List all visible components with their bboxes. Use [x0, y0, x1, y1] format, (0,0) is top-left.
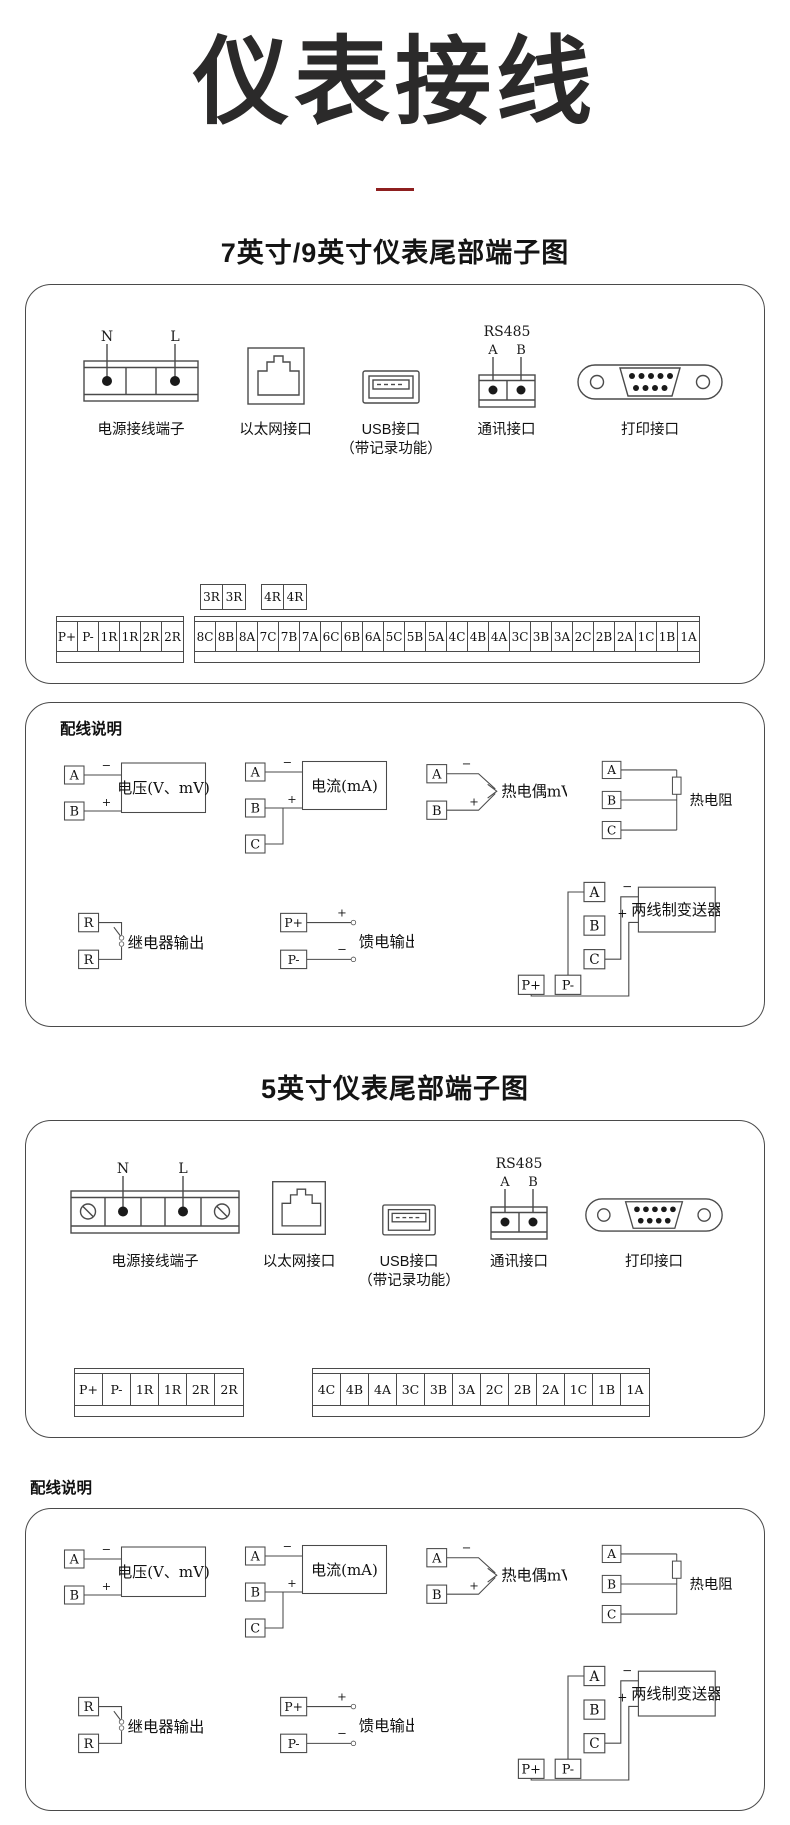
svg-text:A: A — [69, 769, 80, 784]
power-terminal-icon-wrap: N L — [67, 1153, 243, 1241]
svg-text:R: R — [84, 1700, 95, 1715]
relay-terminal-row: 3R3R 4R4R — [200, 584, 764, 610]
voltage-wiring-diagram: − + A B 电压(V、mV) — [60, 1541, 210, 1616]
svg-text:P-: P- — [288, 1737, 300, 1751]
svg-text:+: + — [617, 907, 627, 921]
terminal-cell: 1R — [131, 1374, 159, 1405]
svg-text:−: − — [102, 1543, 111, 1556]
ports-row: N L 电源接线端子 — [26, 1153, 764, 1291]
svg-text:L: L — [170, 329, 179, 345]
terminal-cell: P- — [78, 622, 99, 651]
terminal-cell: 1C — [636, 622, 657, 651]
svg-text:B: B — [70, 1589, 79, 1604]
thermocouple-wiring-diagram: − + A B 热电偶mV — [422, 757, 567, 833]
usb-icon — [360, 363, 422, 409]
svg-text:+: + — [469, 1579, 479, 1593]
svg-text:−: − — [462, 1541, 472, 1555]
svg-text:+: + — [337, 1689, 347, 1703]
svg-text:C: C — [589, 952, 599, 968]
db9-icon-wrap — [583, 1153, 725, 1241]
relay-output-wiring-diagram: R R 继电器输出 — [74, 904, 212, 981]
terminal-cell: P- — [103, 1374, 131, 1405]
power-port-label: 电源接线端子 — [112, 1253, 199, 1272]
svg-text:+: + — [102, 1580, 111, 1593]
svg-text:−: − — [337, 942, 347, 956]
left-terminal-strip: P+P-1R1R2R2R — [74, 1368, 244, 1417]
usb-port: USB接口 （带记录功能） — [354, 1153, 464, 1291]
page: 仪表接线 7英寸/9英寸仪表尾部端子图 N L 电源接线端子 — [0, 0, 790, 1811]
power-port-label: 电源接线端子 — [98, 421, 185, 440]
svg-text:C: C — [250, 1622, 260, 1637]
rs485-terminal-icon: RS485 A B — [481, 1155, 557, 1241]
wiring-heading: 配线说明 — [30, 1476, 790, 1498]
red-divider — [376, 188, 414, 191]
terminal-cell: 2R — [187, 1374, 215, 1405]
svg-text:A: A — [431, 1552, 442, 1567]
svg-text:热电偶mV: 热电偶mV — [501, 1567, 567, 1585]
terminal-cell: 1A — [621, 1374, 649, 1405]
wiring-diagrams: − + A B 电压(V、mV) − + A B C 电流(mA) — [60, 757, 738, 1008]
terminal-cell: 1B — [593, 1374, 621, 1405]
ethernet-icon-wrap — [268, 1153, 330, 1241]
terminal-cell: 5A — [426, 622, 447, 651]
svg-text:RS485: RS485 — [483, 324, 530, 340]
svg-text:馈电输出: 馈电输出 — [359, 933, 414, 951]
two-wire-transmitter-wiring-diagram: − + A B C P+ P- 两线制变送器 — [504, 876, 720, 1008]
ethernet-port: 以太网接口 — [249, 1153, 349, 1272]
svg-text:C: C — [250, 838, 260, 853]
usb-port-sublabel: （带记录功能） — [340, 440, 442, 459]
svg-text:C: C — [607, 1608, 616, 1622]
terminal-cell: 7B — [279, 622, 300, 651]
power-terminal-icon-wrap: N L — [76, 321, 206, 409]
terminal-strips-5: P+P-1R1R2R2R 4C4B4A3C3B3A2C2B2A1C1B1A — [26, 1368, 764, 1417]
svg-text:A: A — [499, 1175, 510, 1190]
svg-text:继电器输出: 继电器输出 — [128, 1718, 205, 1736]
svg-text:电压(V、mV): 电压(V、mV) — [117, 779, 210, 797]
usb-port-sublabel: （带记录功能） — [358, 1272, 460, 1291]
terminal-cell: 3A — [453, 1374, 481, 1405]
terminal-cell: 2B — [509, 1374, 537, 1405]
relay-pair-4r: 4R4R — [261, 584, 307, 610]
strip-rail — [57, 651, 183, 662]
svg-text:P+: P+ — [284, 1700, 303, 1714]
ports-row: N L 电源接线端子 — [26, 321, 764, 459]
svg-text:B: B — [589, 1703, 599, 1719]
terminal-cell: 2A — [537, 1374, 565, 1405]
rtd-wiring-diagram: A B C 热电阻 — [598, 1541, 734, 1627]
ethernet-icon — [243, 343, 309, 409]
svg-text:C: C — [607, 824, 616, 838]
terminal-cell: 2C — [573, 622, 594, 651]
svg-text:P+: P+ — [522, 979, 541, 994]
terminal-panel-7-9-inch: N L 电源接线端子 — [25, 284, 765, 684]
print-port: 打印接口 — [566, 321, 734, 440]
ethernet-port: 以太网接口 — [223, 321, 328, 440]
wiring-row-1: − + A B 电压(V、mV) − + A B C 电流(mA) — [60, 1541, 738, 1646]
svg-text:继电器输出: 继电器输出 — [128, 934, 205, 952]
ethernet-port-label: 以太网接口 — [239, 421, 312, 440]
wiring-panel-5: − + A B 电压(V、mV) − + A B C 电流(mA) — [25, 1508, 765, 1811]
terminal-cell: 6C — [321, 622, 342, 651]
svg-text:+: + — [102, 796, 111, 809]
power-port: N L 电源接线端子 — [66, 321, 216, 440]
terminal-strips-7-9: 3R3R 4R4R P+P-1R1R2R2R 8C8B8A7C7B7A6C6B6… — [26, 584, 764, 663]
terminal-cell: 3C — [397, 1374, 425, 1405]
terminal-cell: 4R — [284, 584, 307, 610]
svg-text:A: A — [487, 343, 498, 358]
main-terminal-strips: P+P-1R1R2R2R 8C8B8A7C7B7A6C6B6A5C5B5A4C4… — [56, 616, 764, 663]
wiring-heading: 配线说明 — [60, 717, 738, 739]
wiring-diagrams: − + A B 电压(V、mV) − + A B C 电流(mA) — [60, 1541, 738, 1792]
terminal-cell: 4B — [468, 622, 489, 651]
terminal-cell: 3A — [552, 622, 573, 651]
svg-text:P-: P- — [562, 1763, 574, 1778]
print-port-label: 打印接口 — [621, 421, 679, 440]
terminal-panel-5-inch: N L 电源接线端子 — [25, 1120, 765, 1438]
current-wiring-diagram: − + A B C 电流(mA) — [241, 1541, 391, 1646]
terminal-cell: 1C — [565, 1374, 593, 1405]
terminal-cell: 3R — [223, 584, 246, 610]
svg-text:两线制变送器: 两线制变送器 — [631, 902, 720, 920]
svg-text:N: N — [101, 329, 113, 345]
terminal-cell: 2R — [162, 622, 183, 651]
print-port-label: 打印接口 — [625, 1253, 683, 1272]
ethernet-port-label: 以太网接口 — [263, 1253, 336, 1272]
usb-icon-wrap — [380, 1153, 438, 1241]
usb-icon-wrap — [360, 321, 422, 409]
svg-text:+: + — [617, 1691, 627, 1705]
svg-text:电流(mA): 电流(mA) — [311, 1561, 378, 1579]
terminal-cell: 7A — [300, 622, 321, 651]
svg-text:A: A — [606, 764, 616, 778]
two-wire-transmitter-wiring-diagram: − + A B C P+ P- 两线制变送器 — [504, 1660, 720, 1792]
terminal-cell: 2C — [481, 1374, 509, 1405]
strip-rail — [195, 651, 699, 662]
terminal-cell: 5B — [405, 622, 426, 651]
terminal-cell: 8A — [237, 622, 258, 651]
svg-text:+: + — [287, 1577, 296, 1590]
svg-text:+: + — [469, 795, 479, 809]
svg-text:R: R — [84, 916, 95, 931]
usb-port: USB接口 （带记录功能） — [335, 321, 447, 459]
feed-output-wiring-diagram: + − P+ P- 馈电输出 — [276, 1688, 414, 1765]
svg-text:P-: P- — [288, 953, 300, 967]
svg-text:B: B — [432, 1588, 441, 1603]
svg-text:P+: P+ — [284, 916, 303, 930]
svg-text:A: A — [431, 768, 442, 783]
ethernet-icon-wrap — [243, 321, 309, 409]
terminal-cell: 1B — [657, 622, 678, 651]
svg-text:+: + — [337, 905, 347, 919]
terminal-cell: 4A — [369, 1374, 397, 1405]
svg-text:C: C — [589, 1736, 599, 1752]
rtd-wiring-diagram: A B C 热电阻 — [598, 757, 734, 843]
usb-port-label: USB接口 — [380, 1253, 439, 1272]
page-title: 仪表接线 — [0, 28, 790, 138]
comm-port: RS485 A B 通讯接口 — [469, 1153, 569, 1272]
usb-port-label: USB接口 — [362, 421, 421, 440]
svg-text:A: A — [588, 1669, 599, 1685]
terminal-cell: 4A — [489, 622, 510, 651]
terminal-cell: 4B — [341, 1374, 369, 1405]
svg-text:B: B — [432, 804, 441, 819]
terminal-cell: 7C — [258, 622, 279, 651]
svg-text:RS485: RS485 — [496, 1156, 543, 1172]
svg-text:B: B — [516, 343, 526, 358]
terminal-cell: 3C — [510, 622, 531, 651]
svg-text:A: A — [606, 1548, 616, 1562]
wiring-row-2: R R 继电器输出 + − P+ P- 馈电输出 − — [60, 876, 738, 1008]
rs485-terminal-icon: RS485 A B — [469, 323, 545, 409]
svg-text:B: B — [607, 1578, 616, 1592]
svg-text:电压(V、mV): 电压(V、mV) — [117, 1563, 210, 1581]
thermocouple-wiring-diagram: − + A B 热电偶mV — [422, 1541, 567, 1617]
feed-output-wiring-diagram: + − P+ P- 馈电输出 — [276, 904, 414, 981]
svg-text:P-: P- — [562, 979, 574, 994]
svg-text:P+: P+ — [522, 1763, 541, 1778]
svg-text:−: − — [283, 757, 292, 769]
terminal-cell: P+ — [57, 622, 78, 651]
svg-text:B: B — [251, 802, 260, 817]
wiring-row-2: R R 继电器输出 + − P+ P- 馈电输出 − — [60, 1660, 738, 1792]
svg-text:−: − — [283, 1541, 292, 1553]
left-terminal-strip: P+P-1R1R2R2R — [56, 616, 184, 663]
terminal-cell: 1R — [99, 622, 120, 651]
terminal-cell: 2A — [615, 622, 636, 651]
terminal-cell: 4R — [261, 584, 284, 610]
terminal-cell: 3B — [531, 622, 552, 651]
svg-text:R: R — [84, 1737, 95, 1752]
terminal-cell: 8B — [216, 622, 237, 651]
svg-text:−: − — [337, 1726, 347, 1740]
svg-text:电流(mA): 电流(mA) — [311, 777, 378, 795]
svg-text:B: B — [70, 805, 79, 820]
db9-print-icon — [575, 355, 725, 409]
svg-text:馈电输出: 馈电输出 — [359, 1717, 414, 1735]
terminal-cell: 5C — [384, 622, 405, 651]
right-terminal-strip: 8C8B8A7C7B7A6C6B6A5C5B5A4C4B4A3C3B3A2C2B… — [194, 616, 700, 663]
svg-text:A: A — [250, 766, 261, 781]
relay-output-wiring-diagram: R R 继电器输出 — [74, 1688, 212, 1765]
terminal-cell: P+ — [75, 1374, 103, 1405]
comm-port: RS485 A B 通讯接口 — [454, 321, 559, 440]
terminal-cell: 6B — [342, 622, 363, 651]
voltage-wiring-diagram: − + A B 电压(V、mV) — [60, 757, 210, 832]
wiring-row-1: − + A B 电压(V、mV) − + A B C 电流(mA) — [60, 757, 738, 862]
svg-text:B: B — [528, 1175, 538, 1190]
svg-text:−: − — [462, 757, 472, 771]
svg-text:+: + — [287, 793, 296, 806]
svg-text:B: B — [589, 919, 599, 935]
strip-rail — [313, 1405, 649, 1416]
svg-text:−: − — [622, 880, 632, 894]
power-terminal-icon: N L — [76, 329, 206, 409]
wiring-panel-7-9: 配线说明 − + A B 电压(V、mV) − + A — [25, 702, 765, 1027]
terminal-cell: 4C — [447, 622, 468, 651]
svg-text:N: N — [117, 1161, 129, 1177]
svg-text:L: L — [178, 1161, 187, 1177]
terminal-cell: 2R — [215, 1374, 243, 1405]
svg-text:B: B — [251, 1586, 260, 1601]
svg-text:R: R — [84, 953, 95, 968]
terminal-cell: 3B — [425, 1374, 453, 1405]
svg-text:B: B — [607, 794, 616, 808]
terminal-cell: 3R — [200, 584, 223, 610]
svg-text:热电阻: 热电阻 — [690, 792, 733, 809]
comm-port-label: 通讯接口 — [490, 1253, 548, 1272]
right-terminal-strip: 4C4B4A3C3B3A2C2B2A1C1B1A — [312, 1368, 650, 1417]
db9-icon-wrap — [575, 321, 725, 409]
rs485-icon-wrap: RS485 A B — [469, 321, 545, 409]
ethernet-icon — [268, 1175, 330, 1241]
terminal-cell: 1A — [678, 622, 699, 651]
svg-text:两线制变送器: 两线制变送器 — [631, 1686, 720, 1704]
terminal-cell: 8C — [195, 622, 216, 651]
current-wiring-diagram: − + A B C 电流(mA) — [241, 757, 391, 862]
svg-text:A: A — [250, 1550, 261, 1565]
svg-text:A: A — [69, 1553, 80, 1568]
svg-text:−: − — [622, 1664, 632, 1678]
power-port: N L 电源接线端子 — [66, 1153, 244, 1272]
terminal-cell: 1R — [120, 622, 141, 651]
svg-text:−: − — [102, 759, 111, 772]
rs485-icon-wrap: RS485 A B — [481, 1153, 557, 1241]
terminal-cell: 6A — [363, 622, 384, 651]
terminal-cell: 4C — [313, 1374, 341, 1405]
usb-icon — [380, 1197, 438, 1241]
section-heading-7-9-inch: 7英寸/9英寸仪表尾部端子图 — [0, 231, 790, 270]
main-terminal-strips: P+P-1R1R2R2R 4C4B4A3C3B3A2C2B2A1C1B1A — [74, 1368, 764, 1417]
relay-pair-3r: 3R3R — [200, 584, 246, 610]
db9-print-icon — [583, 1189, 725, 1241]
power-terminal-icon: N L — [67, 1161, 243, 1241]
comm-port-label: 通讯接口 — [478, 421, 536, 440]
svg-text:热电偶mV: 热电偶mV — [501, 783, 567, 801]
terminal-cell: 2B — [594, 622, 615, 651]
svg-text:A: A — [588, 885, 599, 901]
terminal-cell: 2R — [141, 622, 162, 651]
terminal-cell: 1R — [159, 1374, 187, 1405]
section-heading-5-inch: 5英寸仪表尾部端子图 — [0, 1067, 790, 1106]
print-port: 打印接口 — [574, 1153, 734, 1272]
svg-text:热电阻: 热电阻 — [690, 1576, 733, 1593]
strip-rail — [75, 1405, 243, 1416]
